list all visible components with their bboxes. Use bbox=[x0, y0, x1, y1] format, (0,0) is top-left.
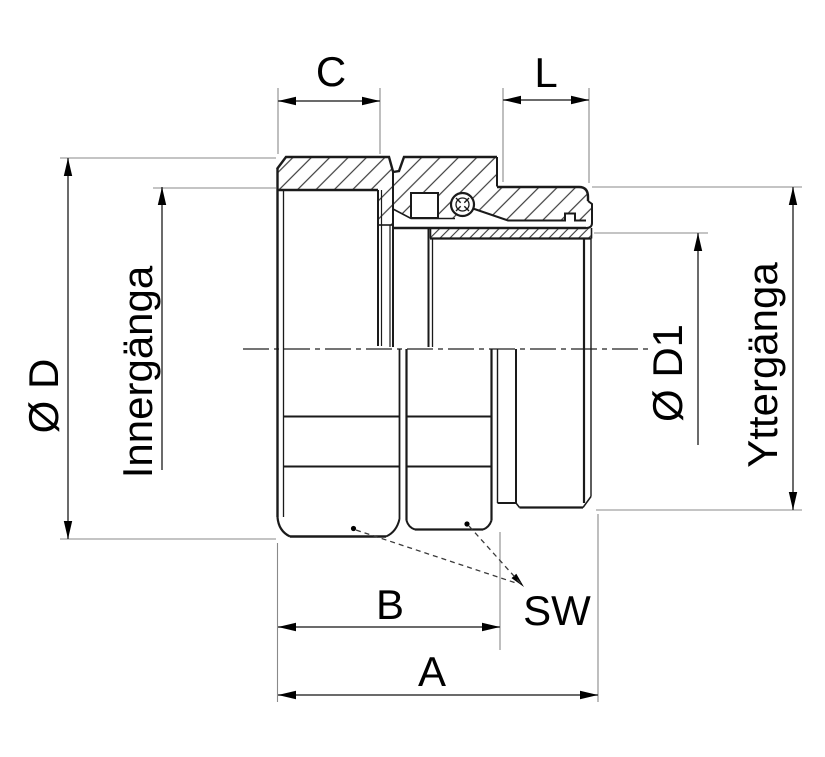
arrow-c-right bbox=[362, 97, 380, 105]
hex-corner-chamfer-right bbox=[483, 521, 492, 530]
arrow-b-right bbox=[482, 623, 500, 631]
coupling-cross-section-drawing: C L Ø D Innergänga Ø D1 Yttergänga B SW … bbox=[0, 0, 825, 757]
dim-label-b: B bbox=[376, 581, 404, 628]
label-inner-thread: Innergänga bbox=[114, 265, 161, 478]
detent-ball bbox=[451, 193, 474, 216]
sw-leader-dot-nut bbox=[351, 526, 356, 531]
label-outer-thread: Yttergänga bbox=[739, 262, 786, 468]
thread-relief-chamfer bbox=[516, 503, 520, 508]
dim-label-diameter-d1: Ø D1 bbox=[644, 324, 691, 422]
dim-label-diameter-d: Ø D bbox=[20, 359, 67, 434]
sw-leader-dot-hex bbox=[464, 521, 469, 526]
dimension-labels: C L Ø D Innergänga Ø D1 Yttergänga B SW … bbox=[20, 48, 786, 695]
arrow-d-bottom bbox=[64, 521, 72, 539]
arrow-d1 bbox=[694, 233, 702, 251]
hex-corner-chamfer-left bbox=[407, 521, 416, 530]
dim-label-c: C bbox=[316, 48, 346, 95]
technical-drawing-page: C L Ø D Innergänga Ø D1 Yttergänga B SW … bbox=[0, 0, 825, 757]
label-sw: SW bbox=[523, 587, 591, 634]
dim-label-a: A bbox=[418, 648, 446, 695]
nut-corner-chamfer-left bbox=[278, 517, 291, 537]
dim-label-l: L bbox=[534, 49, 557, 96]
arrow-l-left bbox=[503, 96, 521, 104]
fitting-section-hatch bbox=[277, 157, 592, 239]
sw-leaders bbox=[351, 521, 522, 585]
arrow-l-right bbox=[571, 96, 589, 104]
nut-corner-chamfer-right bbox=[386, 519, 400, 537]
arrow-b-left bbox=[278, 623, 296, 631]
retainer-groove bbox=[411, 193, 438, 218]
arrow-innerganga bbox=[158, 187, 166, 205]
sw-leader-line-1 bbox=[356, 530, 516, 583]
arrow-yttergange-bottom bbox=[789, 492, 797, 510]
arrow-yttergange-top bbox=[789, 187, 797, 205]
arrow-a-right bbox=[580, 691, 598, 699]
arrow-a-left bbox=[278, 691, 296, 699]
sleeve-wall-section bbox=[431, 229, 592, 239]
arrow-d-top bbox=[64, 158, 72, 176]
arrow-c-left bbox=[278, 97, 296, 105]
